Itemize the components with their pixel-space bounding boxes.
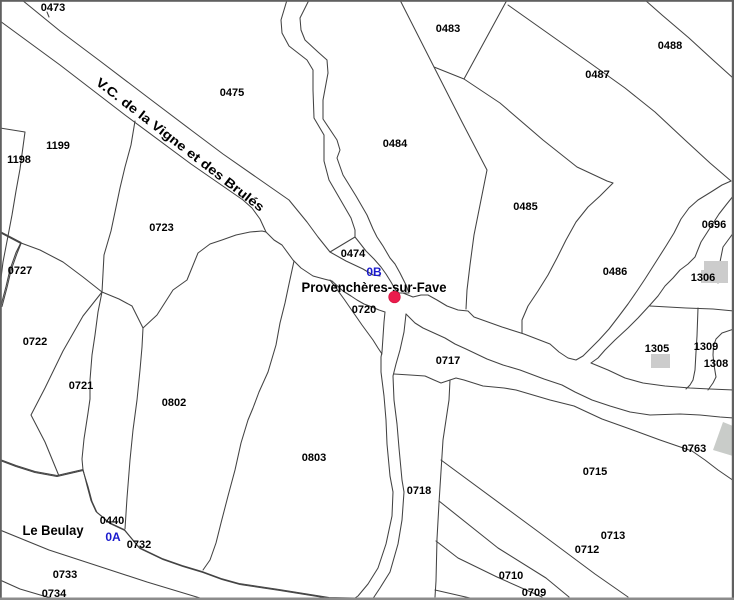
svg-text:0803: 0803 xyxy=(302,452,326,464)
svg-text:0440: 0440 xyxy=(100,515,124,527)
svg-text:0722: 0722 xyxy=(23,336,47,348)
svg-text:0B: 0B xyxy=(366,265,382,279)
svg-text:1306: 1306 xyxy=(691,272,715,284)
svg-text:Le Beulay: Le Beulay xyxy=(23,522,84,538)
svg-text:1309: 1309 xyxy=(694,341,718,353)
svg-text:0483: 0483 xyxy=(436,23,460,35)
svg-text:0485: 0485 xyxy=(513,201,537,213)
svg-text:0486: 0486 xyxy=(603,266,627,278)
svg-text:0709: 0709 xyxy=(522,587,546,599)
svg-text:0487: 0487 xyxy=(585,69,609,81)
svg-text:0A: 0A xyxy=(105,530,121,544)
svg-text:0733: 0733 xyxy=(53,569,77,581)
svg-text:1199: 1199 xyxy=(46,140,70,152)
svg-text:1305: 1305 xyxy=(645,343,669,355)
svg-text:0723: 0723 xyxy=(149,222,173,234)
svg-text:0718: 0718 xyxy=(407,485,431,497)
svg-text:0475: 0475 xyxy=(220,87,244,99)
svg-text:0484: 0484 xyxy=(383,138,408,150)
svg-text:0727: 0727 xyxy=(8,265,32,277)
svg-text:0721: 0721 xyxy=(69,380,93,392)
svg-text:0715: 0715 xyxy=(583,466,607,478)
svg-text:0473: 0473 xyxy=(41,2,65,14)
svg-text:1198: 1198 xyxy=(7,154,31,166)
svg-text:0717: 0717 xyxy=(436,355,460,367)
svg-text:0802: 0802 xyxy=(162,397,186,409)
svg-text:0696: 0696 xyxy=(702,219,726,231)
svg-text:0720: 0720 xyxy=(352,304,376,316)
svg-text:0488: 0488 xyxy=(658,40,682,52)
svg-text:Provenchères-sur-Fave: Provenchères-sur-Fave xyxy=(302,279,447,295)
svg-text:0710: 0710 xyxy=(499,570,523,582)
svg-text:0474: 0474 xyxy=(341,248,366,260)
svg-text:0712: 0712 xyxy=(575,544,599,556)
svg-text:1308: 1308 xyxy=(704,358,728,370)
svg-text:0732: 0732 xyxy=(127,539,151,551)
svg-text:0763: 0763 xyxy=(682,443,706,455)
svg-text:0713: 0713 xyxy=(601,530,625,542)
